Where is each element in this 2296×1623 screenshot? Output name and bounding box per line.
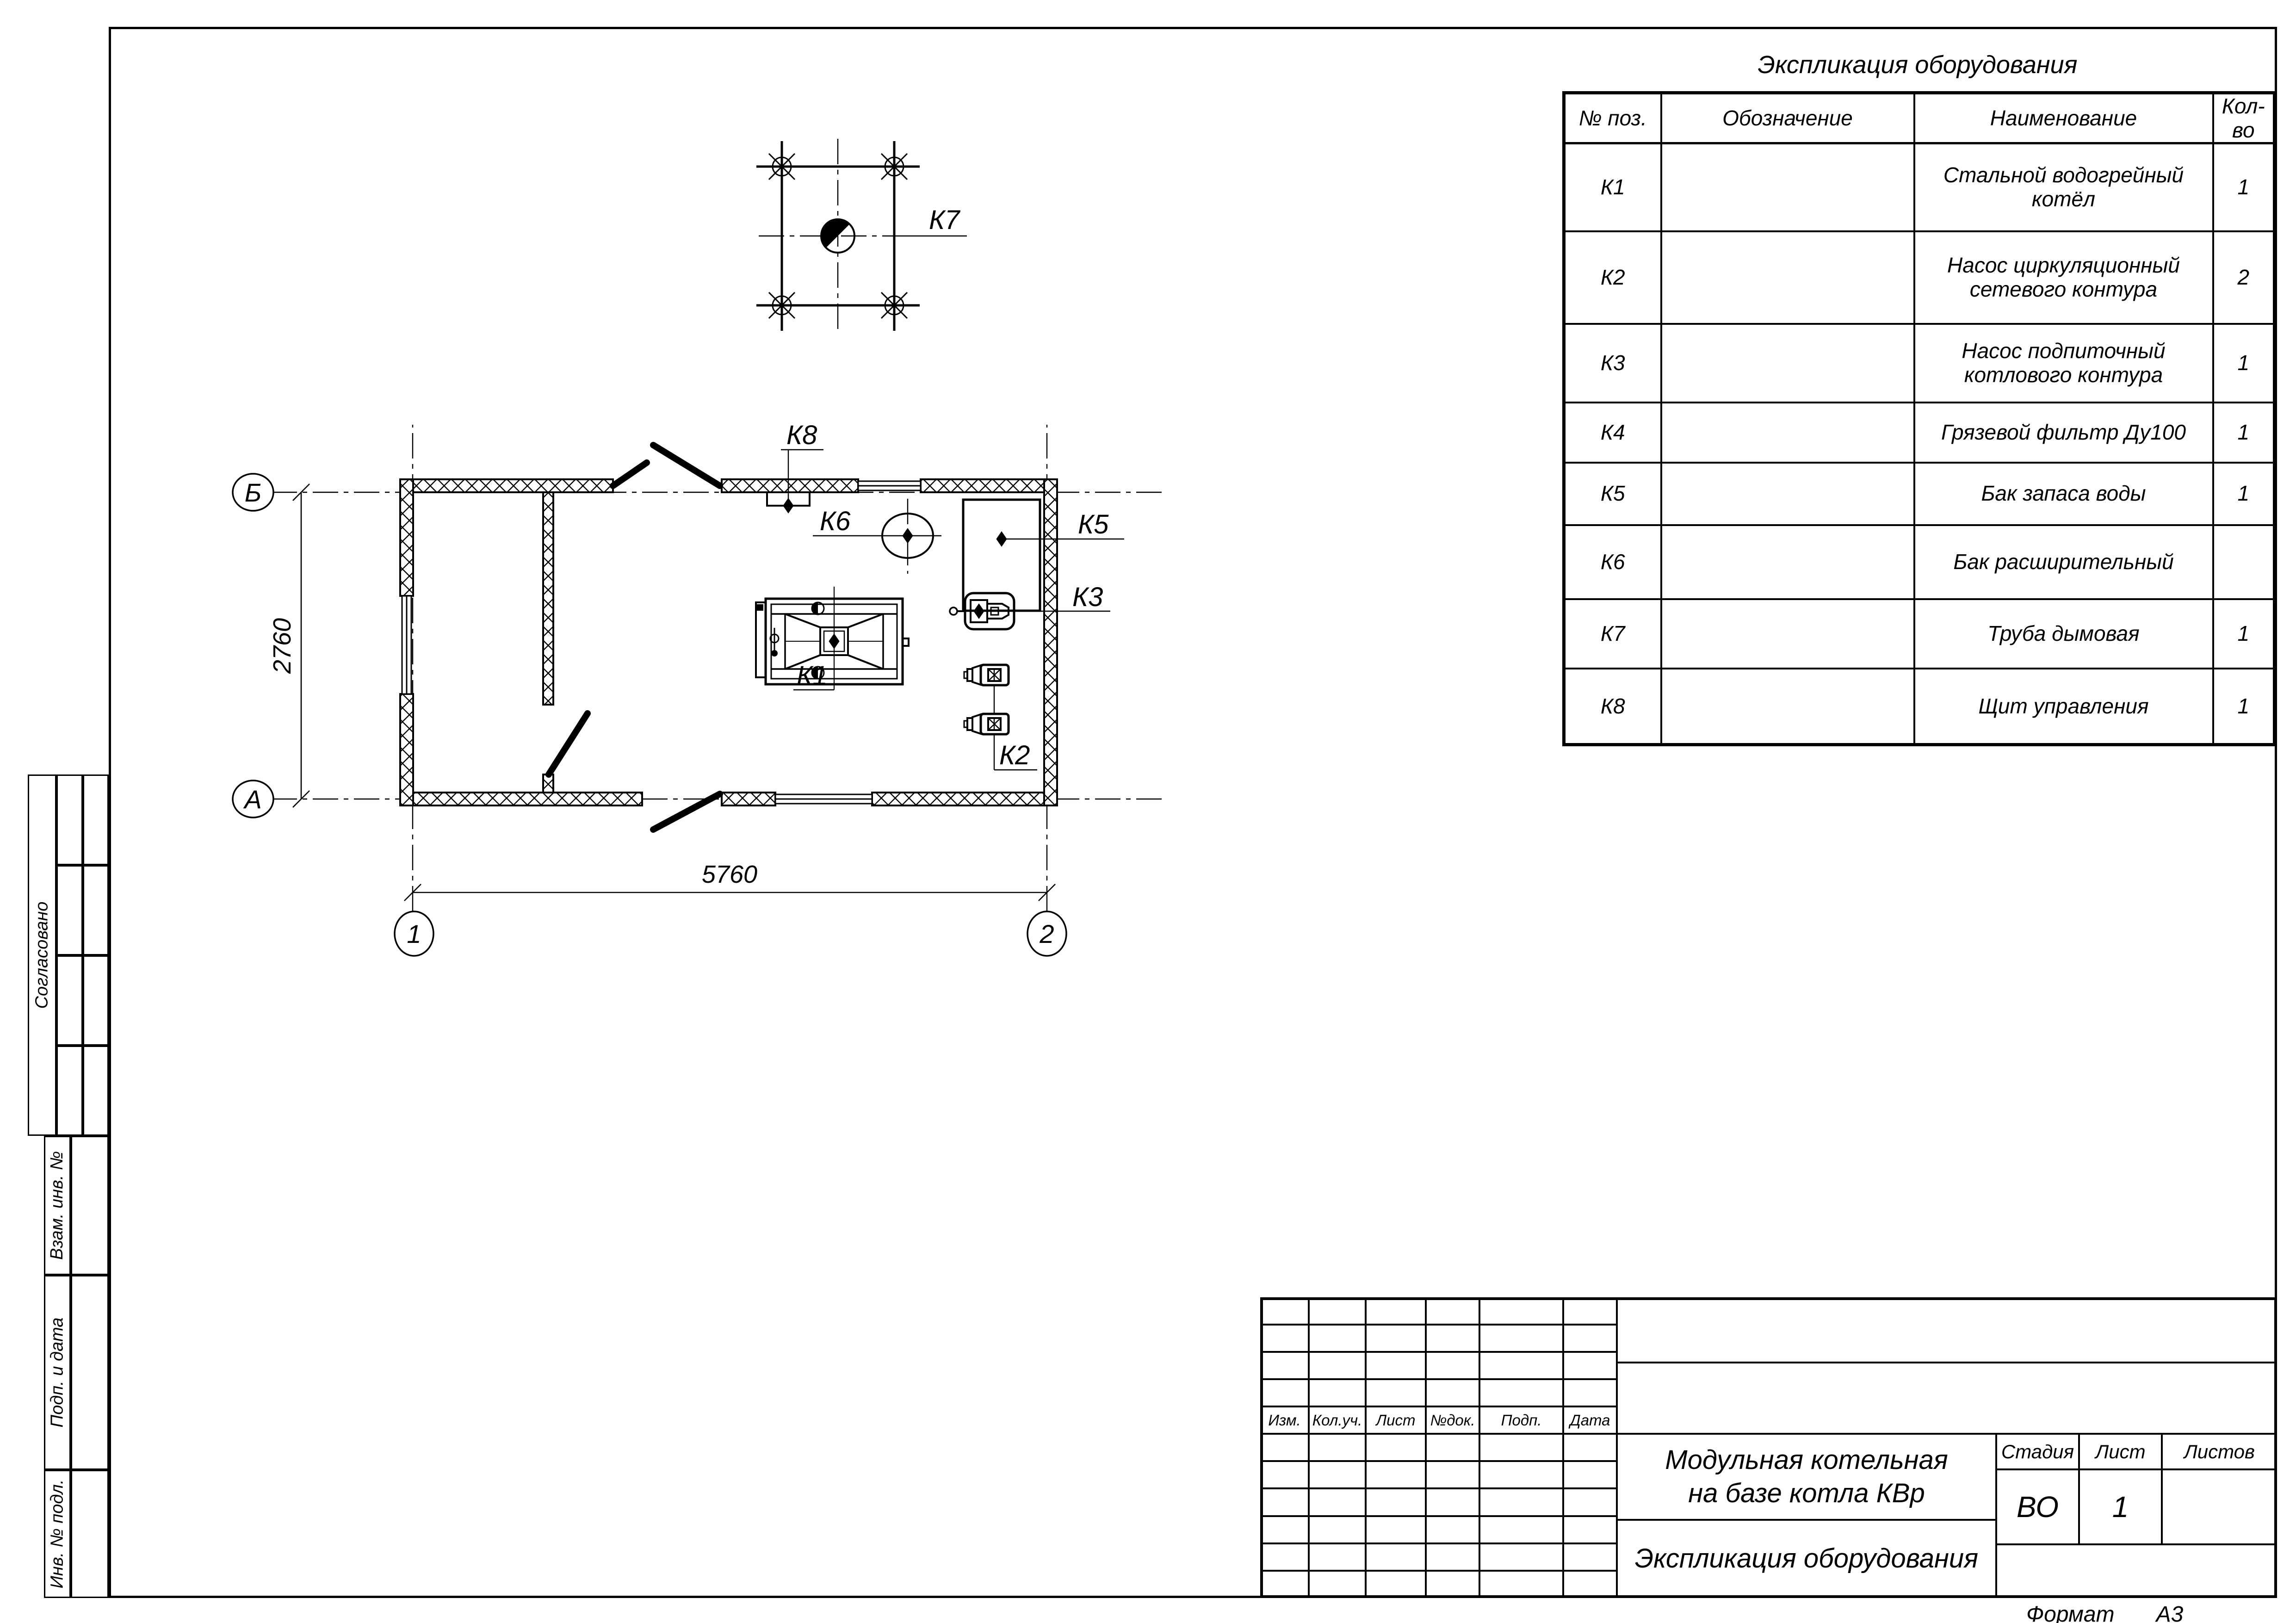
table-row: К5 Бак запаса воды1: [1564, 463, 2275, 525]
col-header-designation: Обозначение: [1661, 93, 1914, 143]
equip-table: № поз. Обозначение Наименование Кол-во К…: [1562, 91, 2276, 746]
format-note: Формат А3: [2026, 1602, 2267, 1623]
sidebar-item-podp: Подп. и дата: [44, 1275, 71, 1470]
table-row: К1 Стальной водогрейный котёл1: [1564, 143, 2275, 231]
table-row: К4 Грязевой фильтр Ду1001: [1564, 403, 2275, 463]
format-label: Формат: [2026, 1602, 2115, 1623]
format-value: А3: [2156, 1602, 2184, 1623]
table-row: К8 Щит управления1: [1564, 669, 2275, 745]
table-row: К3 Насос подпиточный котлового контура1: [1564, 324, 2275, 403]
table-row: К6 Бак расширительный: [1564, 525, 2275, 599]
table-row: К7 Труба дымовая1: [1564, 599, 2275, 669]
sidebar-label: Взам. инв. №: [48, 1151, 68, 1260]
equip-table-header: № поз. Обозначение Наименование Кол-во: [1564, 93, 2275, 143]
equip-table-title: Экспликация оборудования: [1562, 46, 2273, 83]
col-header-pos: № поз.: [1564, 93, 1661, 143]
sidebar-item-vzam: Взам. инв. №: [44, 1136, 71, 1275]
col-header-qty: Кол-во: [2213, 93, 2275, 143]
sidebar-label: Согласовано: [32, 902, 52, 1009]
title-block: Изм. Кол.уч. Лист №док. Подп. Дата: [1260, 1297, 2277, 1598]
drawing-sheet: 2760 5760 Б А 1 2: [0, 0, 2296, 1623]
col-header-name: Наименование: [1914, 93, 2213, 143]
table-row: К2 Насос циркуляционный сетевого контура…: [1564, 231, 2275, 324]
sidebar-label: Подп. и дата: [48, 1318, 68, 1428]
sidebar-item-inv: Инв. № подл.: [44, 1470, 71, 1598]
sidebar-item-soglasovano: Согласовано: [28, 774, 56, 1136]
sidebar-label: Инв. № подл.: [48, 1480, 68, 1589]
